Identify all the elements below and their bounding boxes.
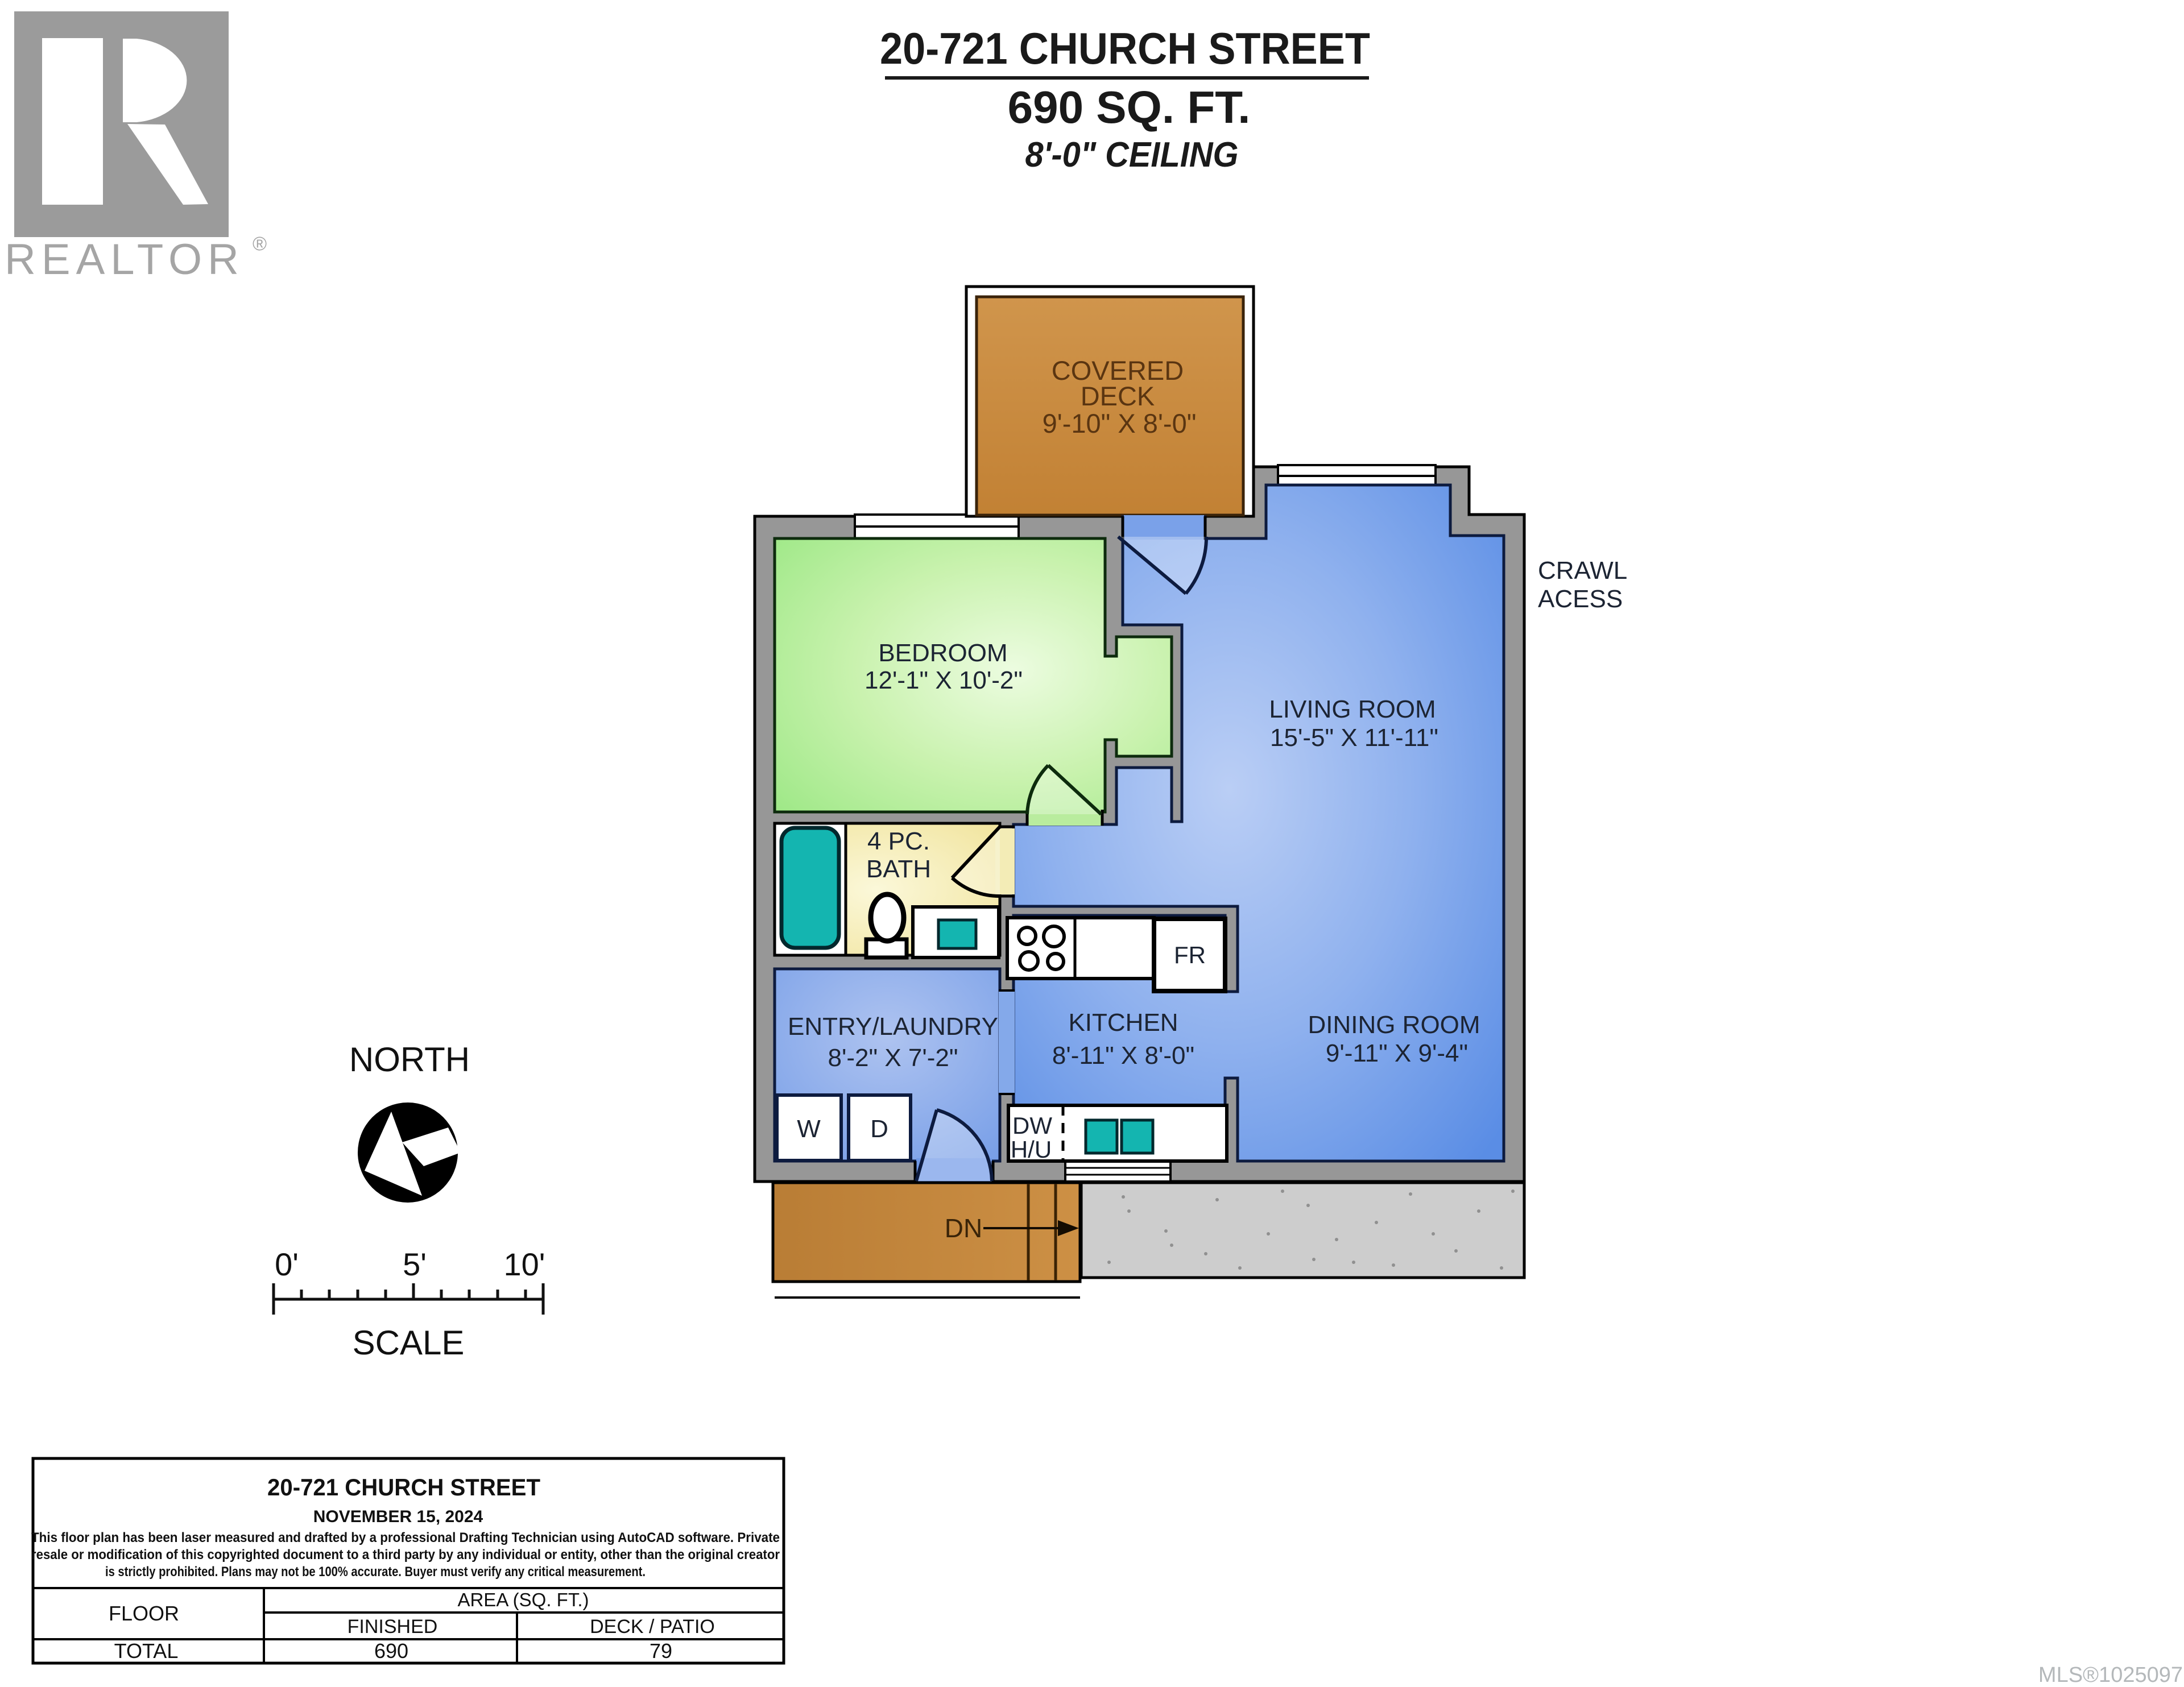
svg-text:DN: DN: [945, 1213, 982, 1243]
svg-text:9'-11" X 9'-4": 9'-11" X 9'-4": [1326, 1039, 1468, 1067]
svg-text:BATH: BATH: [866, 855, 931, 883]
svg-text:W: W: [797, 1115, 821, 1143]
svg-text:H/U: H/U: [1011, 1136, 1052, 1163]
svg-text:10': 10': [504, 1246, 545, 1282]
svg-text:8'-11" X 8'-0": 8'-11" X 8'-0": [1052, 1042, 1194, 1070]
svg-text:ENTRY/LAUNDRY: ENTRY/LAUNDRY: [788, 1013, 998, 1041]
svg-text:0': 0': [275, 1246, 299, 1282]
svg-text:AREA (SQ. FT.): AREA (SQ. FT.): [457, 1589, 589, 1610]
svg-text:DECK: DECK: [1081, 381, 1155, 411]
svg-text:9'-10" X 8'-0": 9'-10" X 8'-0": [1043, 408, 1197, 438]
svg-text:79: 79: [650, 1639, 672, 1663]
svg-text:®: ®: [253, 233, 267, 255]
svg-text:20-721 CHURCH STREET: 20-721 CHURCH STREET: [267, 1474, 540, 1501]
svg-text:KITCHEN: KITCHEN: [1068, 1009, 1178, 1037]
svg-text:FR: FR: [1174, 942, 1206, 968]
svg-text:CRAWL: CRAWL: [1538, 557, 1627, 585]
svg-text:690 SQ. FT.: 690 SQ. FT.: [1008, 82, 1251, 132]
svg-text:DECK / PATIO: DECK / PATIO: [590, 1616, 715, 1638]
svg-text:LIVING ROOM: LIVING ROOM: [1269, 695, 1436, 723]
svg-text:D: D: [870, 1115, 888, 1143]
svg-text:4 PC.: 4 PC.: [867, 827, 930, 855]
svg-text:MLS®1025097: MLS®1025097: [2038, 1663, 2183, 1687]
svg-text:FINISHED: FINISHED: [348, 1616, 438, 1638]
svg-text:BEDROOM: BEDROOM: [878, 639, 1007, 667]
svg-text:NORTH: NORTH: [349, 1041, 470, 1079]
svg-text:8'-0" CEILING: 8'-0" CEILING: [1025, 135, 1239, 175]
svg-text:SCALE: SCALE: [353, 1324, 465, 1362]
svg-text:8'-2" X 7'-2": 8'-2" X 7'-2": [828, 1044, 958, 1072]
svg-text:ACESS: ACESS: [1538, 585, 1623, 613]
svg-text:REALTOR: REALTOR: [5, 235, 245, 284]
svg-text:FLOOR: FLOOR: [109, 1602, 179, 1625]
svg-text:DW: DW: [1012, 1112, 1052, 1139]
svg-text:20-721 CHURCH STREET: 20-721 CHURCH STREET: [880, 23, 1370, 73]
svg-text:NOVEMBER 15, 2024: NOVEMBER 15, 2024: [313, 1507, 483, 1526]
svg-text:15'-5" X 11'-11": 15'-5" X 11'-11": [1270, 724, 1438, 752]
svg-text:TOTAL: TOTAL: [114, 1639, 179, 1663]
svg-text:This floor plan has been laser: This floor plan has been laser measured …: [31, 1530, 780, 1545]
svg-text:12'-1" X 10'-2": 12'-1" X 10'-2": [864, 666, 1023, 694]
svg-text:690: 690: [374, 1639, 408, 1663]
svg-text:is strictly prohibited. Plans: is strictly prohibited. Plans may not be…: [105, 1564, 646, 1580]
svg-text:DINING ROOM: DINING ROOM: [1308, 1011, 1480, 1039]
svg-text:resale or modification of this: resale or modification of this copyright…: [31, 1547, 780, 1562]
svg-text:5': 5': [403, 1246, 427, 1282]
